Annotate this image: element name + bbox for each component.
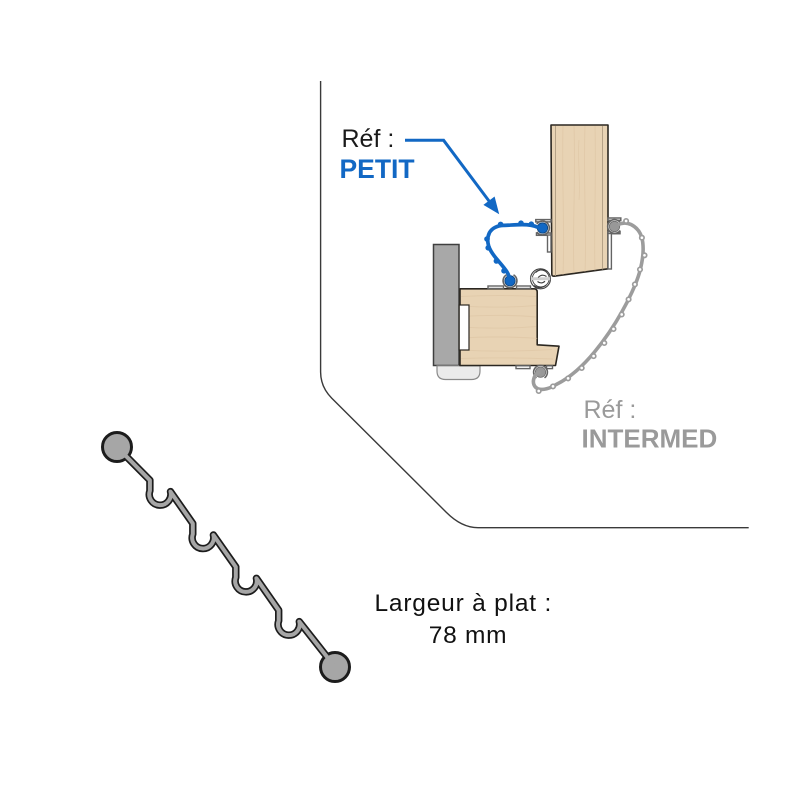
svg-text:Réf :: Réf :: [584, 396, 637, 424]
svg-text:INTERMED: INTERMED: [582, 424, 718, 454]
svg-text:PETIT: PETIT: [340, 154, 415, 184]
svg-text:78 mm: 78 mm: [429, 622, 507, 649]
svg-text:Largeur à plat :: Largeur à plat :: [374, 590, 552, 617]
svg-text:Réf :: Réf :: [342, 125, 395, 153]
